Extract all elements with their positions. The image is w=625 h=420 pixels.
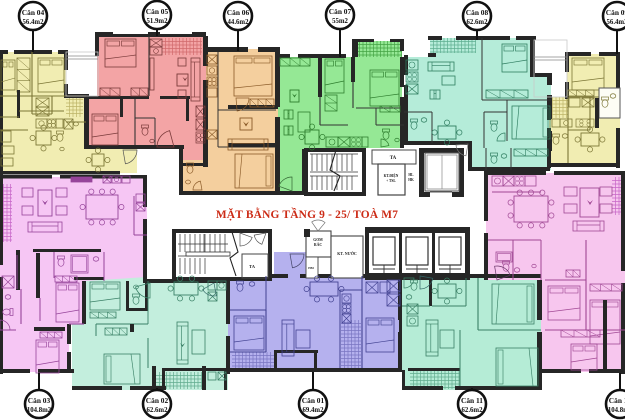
svg-text:51.9m2: 51.9m2 xyxy=(147,18,169,25)
svg-text:104.8m2: 104.8m2 xyxy=(27,407,52,414)
svg-text:Căn 08: Căn 08 xyxy=(466,8,489,17)
svg-text:Căn 09: Căn 09 xyxy=(606,8,625,17)
svg-text:HL: HL xyxy=(408,173,414,177)
svg-text:Căn 10: Căn 10 xyxy=(609,396,625,405)
svg-text:104.8m2: 104.8m2 xyxy=(608,407,625,414)
svg-text:62.6m2: 62.6m2 xyxy=(462,407,484,414)
svg-text:69.4m2: 69.4m2 xyxy=(303,407,325,414)
svg-text:TA: TA xyxy=(249,264,256,269)
svg-text:Căn 01: Căn 01 xyxy=(302,396,325,405)
svg-text:Căn 05: Căn 05 xyxy=(146,7,169,16)
svg-text:Căn 11: Căn 11 xyxy=(461,396,483,405)
svg-text:55m2: 55m2 xyxy=(332,18,348,25)
svg-text:KT.ĐIỆN: KT.ĐIỆN xyxy=(384,173,399,178)
svg-text:44.6m2: 44.6m2 xyxy=(228,19,250,26)
svg-text:Căn 03: Căn 03 xyxy=(28,396,51,405)
svg-text:56.4m2: 56.4m2 xyxy=(607,19,625,26)
svg-text:GOM: GOM xyxy=(313,238,323,242)
svg-text:HM: HM xyxy=(308,266,314,270)
svg-text:Căn 02: Căn 02 xyxy=(146,396,169,405)
svg-text:+ TSL: + TSL xyxy=(386,179,396,183)
svg-text:HK: HK xyxy=(408,178,414,182)
svg-text:Căn 07: Căn 07 xyxy=(329,7,352,16)
svg-text:TA: TA xyxy=(390,156,397,161)
svg-text:Căn 04: Căn 04 xyxy=(22,8,45,17)
svg-text:RÁC: RÁC xyxy=(314,242,322,247)
svg-text:MẶT BẰNG TẦNG 9 - 25/ TOÀ M7: MẶT BẰNG TẦNG 9 - 25/ TOÀ M7 xyxy=(216,208,398,221)
svg-text:Căn 06: Căn 06 xyxy=(227,8,250,17)
svg-text:KT. NƯỚC: KT. NƯỚC xyxy=(337,251,357,256)
svg-text:56.4m2: 56.4m2 xyxy=(23,19,45,26)
svg-text:62.6m2: 62.6m2 xyxy=(147,407,169,414)
svg-text:62.6m2: 62.6m2 xyxy=(467,19,489,26)
